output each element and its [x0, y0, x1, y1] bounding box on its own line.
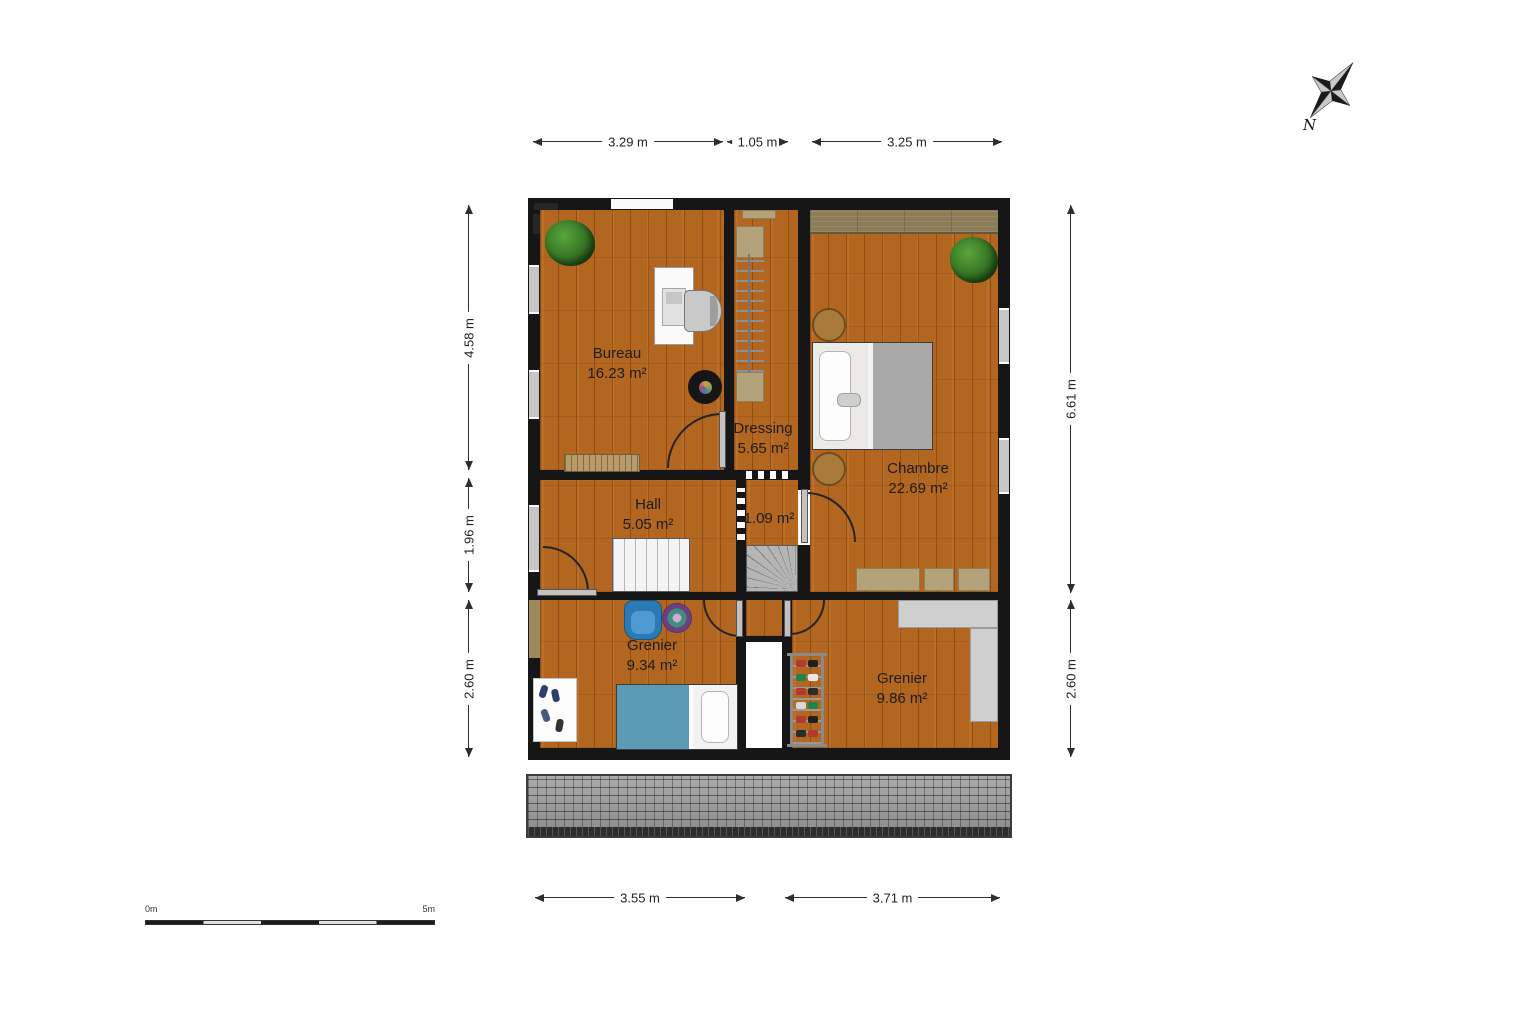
roof-eave [528, 827, 1010, 836]
clothes-rail-icon [736, 258, 764, 372]
room-area: 5.65 m² [733, 439, 792, 459]
kneewall-grenier-left [529, 600, 540, 658]
dim-bottom-0: 3.55 m [535, 897, 745, 898]
double-bed [812, 342, 933, 450]
shoe-icon [796, 730, 806, 737]
shoe-icon [796, 716, 806, 723]
scale-end-label: 5m [422, 904, 435, 914]
wall-decor-icon [534, 203, 558, 210]
shoe-icon [808, 730, 818, 737]
shoe-icon [555, 718, 564, 732]
room-label-dressing: Dressing 5.65 m² [733, 419, 792, 459]
low-drawer-unit [856, 568, 920, 591]
opening-dressing-stairwell [746, 471, 790, 479]
staircase-stairwell [746, 545, 798, 592]
wall-decor-icon [533, 214, 540, 234]
room-label-grenier-1: Grenier 9.34 m² [627, 636, 678, 676]
dim-right-1: 2.60 m [1070, 600, 1071, 757]
builtin-wardrobe [810, 210, 998, 234]
dim-bottom-1: 3.71 m [785, 897, 1000, 898]
window-bureau-left-1 [529, 265, 539, 314]
pillow [701, 691, 729, 743]
dressing-shelf-top [742, 210, 776, 219]
attic-storage-right [970, 628, 998, 722]
dim-left-2: 2.60 m [468, 600, 469, 757]
shoe-icon [796, 660, 806, 667]
window-chambre-right-1 [999, 308, 1009, 364]
void-corridor [746, 642, 782, 748]
shoe-icon [551, 688, 561, 702]
shoe-icon [808, 688, 818, 695]
scale-bar: 0m 5m [145, 904, 435, 928]
wall-bottom [528, 748, 1010, 760]
attic-storage-top [898, 600, 998, 628]
compass-north-label: N [1303, 116, 1316, 134]
room-area: 16.23 m² [587, 364, 646, 384]
wardrobe-box-2 [736, 372, 764, 402]
scale-start-label: 0m [145, 904, 158, 914]
room-label-grenier-2: Grenier 9.86 m² [877, 669, 928, 709]
nightstand [812, 308, 846, 342]
room-area: 9.34 m² [627, 656, 678, 676]
wall-dressing-chambre-upper [798, 210, 810, 490]
radiator [564, 454, 640, 472]
round-rug-color [662, 603, 692, 633]
wall-corridor-lintel [746, 636, 782, 642]
room-area: 22.69 m² [887, 479, 949, 499]
laptop-icon [662, 288, 686, 326]
room-label-stairwell: 1.09 m² [744, 509, 795, 529]
shoe-icon [808, 660, 818, 667]
roof-band [526, 774, 1012, 838]
dim-top-2: 3.25 m [812, 141, 1002, 142]
dim-left-0: 4.58 m [468, 205, 469, 470]
door-leaf-chambre [801, 489, 808, 543]
window-hall-left [529, 505, 539, 572]
shoe-mat [533, 678, 577, 742]
scale-bar-segments [145, 920, 435, 925]
room-name: Dressing [733, 419, 792, 439]
single-bed [616, 684, 738, 750]
shoe-icon [808, 716, 818, 723]
room-name: Grenier [627, 636, 678, 656]
dim-right-0: 6.61 m [1070, 205, 1071, 593]
shoe-icon [808, 674, 818, 681]
door-leaf-bureau [719, 411, 726, 468]
room-area: 1.09 m² [744, 509, 795, 529]
door-leaf-grenier-1 [736, 600, 743, 637]
room-area: 9.86 m² [877, 689, 928, 709]
round-rug-bureau [688, 370, 722, 404]
shoe-icon [538, 684, 549, 699]
window-chambre-right-2 [999, 438, 1009, 494]
compass-rose-icon [1288, 48, 1374, 134]
armchair-blue [624, 600, 662, 640]
room-name: Hall [623, 495, 674, 515]
shoe-icon [540, 708, 551, 723]
room-name: Bureau [587, 344, 646, 364]
cushion [837, 393, 861, 407]
shoe-icon [796, 674, 806, 681]
plant-icon [545, 220, 595, 266]
dim-top-1: 1.05 m [727, 141, 788, 142]
duvet [868, 343, 932, 449]
floor-plan-page: Bureau 16.23 m² Dressing 5.65 m² Chambre… [0, 0, 1536, 1021]
window-bureau-left-2 [529, 370, 539, 419]
shoe-icon [796, 702, 806, 709]
room-name: Grenier [877, 669, 928, 689]
dim-top-0: 3.29 m [533, 141, 723, 142]
room-area: 5.05 m² [623, 515, 674, 535]
room-floor-passage [746, 600, 782, 636]
window-bureau-top [611, 199, 673, 209]
shoe-icon [808, 702, 818, 709]
shoe-icon [796, 688, 806, 695]
wardrobe-box-1 [736, 226, 764, 258]
plant-icon [950, 237, 998, 283]
wall-top [528, 198, 1010, 210]
room-label-chambre: Chambre 22.69 m² [887, 459, 949, 499]
desk-chair [684, 290, 722, 332]
door-leaf-grenier-2 [784, 600, 791, 637]
door-leaf-hall [537, 589, 597, 596]
room-label-bureau: Bureau 16.23 m² [587, 344, 646, 384]
dim-left-1: 1.96 m [468, 478, 469, 592]
shoe-rack [790, 656, 824, 744]
room-label-hall: Hall 5.05 m² [623, 495, 674, 535]
nightstand [812, 452, 846, 486]
low-drawer-unit [924, 568, 954, 591]
wall-chambre-grenier [746, 592, 1010, 600]
low-drawer-unit [958, 568, 990, 591]
room-name: Chambre [887, 459, 949, 479]
staircase-hall [612, 538, 690, 592]
